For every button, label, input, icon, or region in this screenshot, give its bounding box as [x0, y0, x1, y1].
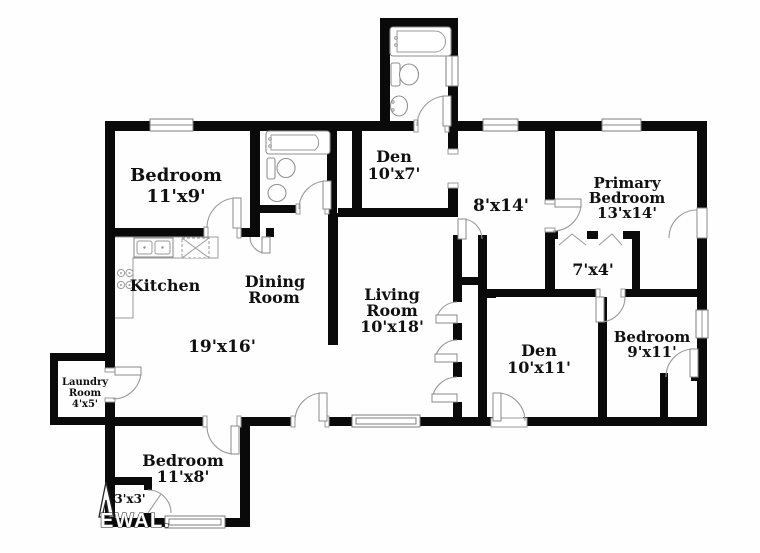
dishwasher-icon — [182, 238, 209, 258]
opening — [448, 149, 458, 188]
room-label-dining-2: Room — [248, 288, 300, 307]
window-icon — [696, 310, 708, 338]
room-label-laundry-1: Laundry — [62, 377, 109, 388]
room-dims-den-top: 10'x7' — [368, 164, 421, 183]
window-icon — [165, 516, 225, 528]
door-icon — [491, 393, 527, 427]
window-icon — [483, 119, 518, 131]
room-dims-den-right: 10'x11' — [507, 358, 571, 377]
toilet-icon — [267, 158, 295, 179]
door-icon — [204, 198, 241, 238]
closet-door-icon — [435, 340, 457, 362]
room-dims-bedroom-top-left: 11'x9' — [146, 186, 205, 207]
door-icon — [545, 199, 581, 232]
room-dims-primary: 13'x14' — [597, 204, 657, 222]
room-dims-bedroom-bottom: 11'x8' — [157, 467, 210, 486]
room-dims-living: 10'x18' — [360, 317, 424, 336]
door-icon — [250, 237, 270, 253]
room-label-bedroom-top-left: Bedroom — [130, 165, 222, 186]
watermark-text: EWAL. — [100, 510, 171, 532]
sink-icon — [268, 185, 286, 202]
door-icon — [669, 208, 707, 238]
window-icon — [352, 415, 420, 427]
room-dims-primary-closet: 7'x4' — [572, 260, 614, 279]
toilet-icon — [391, 63, 419, 86]
window-icon — [150, 119, 193, 131]
room-dims-bedroom-right: 9'x11' — [627, 343, 676, 361]
door-icon — [203, 416, 241, 454]
room-dims-laundry: 4'x5' — [72, 399, 98, 410]
room-labels: Bedroom 11'x9' Den 10'x7' 8'x14' Primary… — [62, 147, 690, 506]
bathtub-icon — [266, 131, 330, 154]
kitchen-sink-icon — [134, 238, 173, 257]
room-dims-great-room: 19'x16' — [188, 337, 256, 357]
room-dims-small-closet: 3'x3' — [114, 492, 145, 506]
door-icon — [296, 181, 331, 214]
room-label-kitchen: Kitchen — [130, 276, 201, 295]
sink-icon — [391, 96, 408, 116]
door-icon — [291, 393, 329, 427]
door-icon — [105, 367, 141, 402]
bathtub-icon — [390, 27, 451, 56]
room-dims-hallway: 8'x14' — [473, 196, 529, 216]
room-label-laundry-2: Room — [69, 388, 102, 399]
closet-door-icon — [436, 302, 457, 323]
door-icon — [414, 96, 451, 132]
door-icon — [596, 289, 625, 322]
closet-door-icon — [432, 377, 457, 402]
window-icon — [446, 56, 458, 86]
floor-plan: Bedroom 11'x9' Den 10'x7' 8'x14' Primary… — [0, 0, 760, 553]
window-icon — [602, 119, 641, 131]
